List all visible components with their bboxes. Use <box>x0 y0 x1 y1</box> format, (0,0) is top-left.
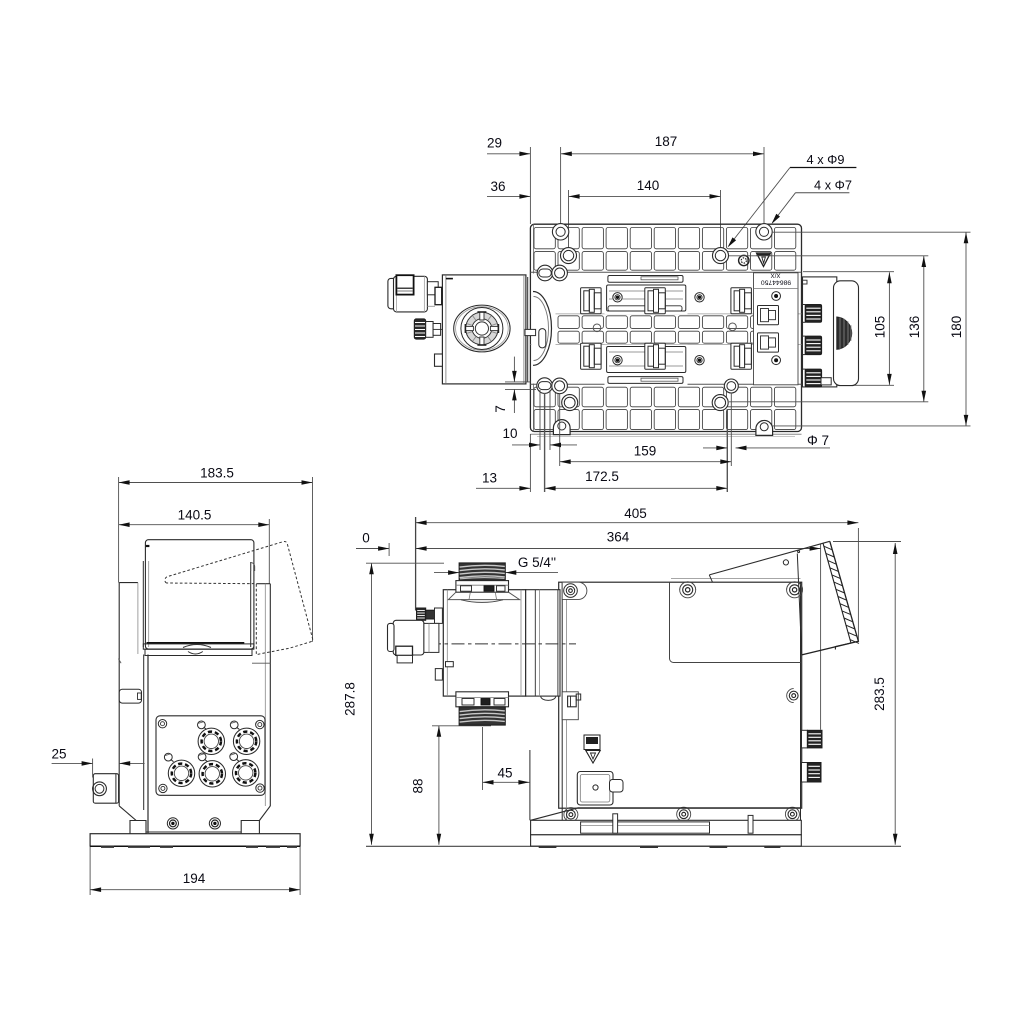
svg-text:364: 364 <box>607 530 630 545</box>
svg-text:136: 136 <box>907 316 922 339</box>
svg-text:98644750: 98644750 <box>761 279 791 286</box>
svg-text:X/X: X/X <box>771 272 781 279</box>
svg-text:140: 140 <box>637 178 660 193</box>
svg-text:7: 7 <box>493 405 508 413</box>
svg-text:140.5: 140.5 <box>178 507 212 522</box>
svg-text:13: 13 <box>482 470 497 485</box>
svg-text:G 5/4'': G 5/4'' <box>518 555 556 570</box>
svg-text:Φ 7: Φ 7 <box>807 433 829 448</box>
svg-text:180: 180 <box>949 316 964 339</box>
svg-text:0: 0 <box>362 531 370 546</box>
svg-text:287.8: 287.8 <box>343 682 358 716</box>
svg-text:172.5: 172.5 <box>585 469 619 484</box>
svg-text:105: 105 <box>873 316 888 339</box>
svg-text:4 x Φ7: 4 x Φ7 <box>814 178 852 193</box>
svg-text:405: 405 <box>624 506 647 521</box>
svg-text:88: 88 <box>411 778 426 793</box>
svg-text:194: 194 <box>183 871 206 886</box>
svg-text:283.5: 283.5 <box>872 677 887 711</box>
svg-text:25: 25 <box>51 746 66 761</box>
svg-text:159: 159 <box>634 444 657 459</box>
svg-text:187: 187 <box>655 134 678 149</box>
svg-text:45: 45 <box>497 765 512 780</box>
svg-text:10: 10 <box>502 426 517 441</box>
svg-text:4 x Φ9: 4 x Φ9 <box>807 152 845 167</box>
svg-text:183.5: 183.5 <box>200 466 234 481</box>
svg-text:36: 36 <box>490 179 505 194</box>
svg-text:29: 29 <box>487 136 502 151</box>
